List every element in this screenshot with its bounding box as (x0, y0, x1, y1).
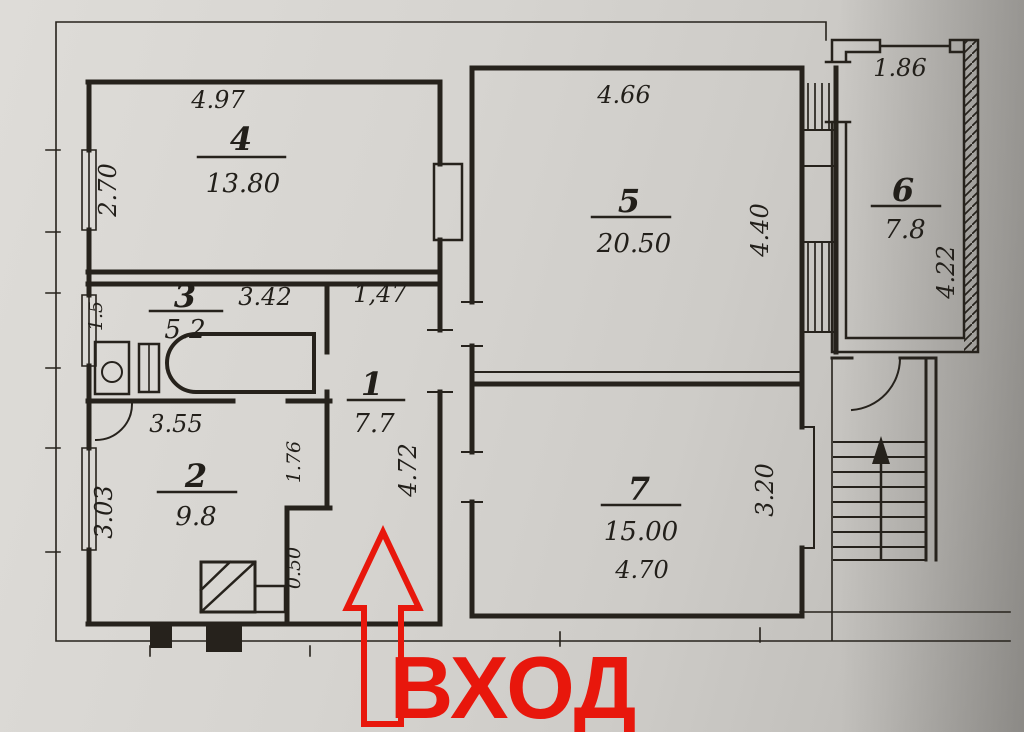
vent-block (150, 624, 172, 648)
dim-height-corridor: 4.72 (394, 443, 422, 497)
room-3-number: 3 (174, 277, 196, 315)
room-7-area: 15.00 (604, 517, 678, 547)
dim-width-room5: 4.66 (596, 81, 650, 109)
walls (88, 68, 836, 624)
stair-up-arrow-head (872, 436, 890, 464)
dim-height-room4: 2.70 (94, 163, 122, 217)
room-7-number: 7 (628, 470, 650, 508)
dim-height-room6: 4.22 (932, 245, 960, 299)
room-4-number: 4 (230, 120, 252, 158)
dim-width-room6: 1.86 (873, 54, 926, 82)
stove-hatch (201, 562, 255, 612)
dim-niche-height: 1.76 (283, 441, 305, 483)
dim-width-hall: 1,47 (353, 280, 407, 308)
kitchen-door-arc (96, 404, 132, 440)
room-2-area: 9.8 (175, 502, 216, 532)
stairwell (832, 358, 936, 560)
dim-height-room7: 3.20 (751, 463, 779, 516)
closet (434, 164, 462, 240)
room6-vent-wall-hatch (964, 40, 978, 352)
room-3-area: 5.2 (164, 315, 205, 345)
dim-height-room2: 3.03 (90, 485, 118, 538)
dim-height-room5: 4.40 (746, 203, 774, 257)
vent-shaft-hatch (802, 243, 835, 331)
toilet (95, 342, 129, 394)
room-1-number: 1 (361, 365, 383, 403)
room-4-area: 13.80 (206, 169, 280, 199)
room-6-area: 7.8 (884, 215, 925, 245)
room-5-area: 20.50 (596, 229, 671, 259)
dim-width-room7: 4.70 (614, 556, 668, 584)
floor-plan-scan: 4 13.80 3 5.2 1 7.7 2 9.8 5 20.50 7 15.0… (0, 0, 1024, 732)
dim-width-room2: 3.55 (149, 410, 202, 438)
dim-width-room4: 4.97 (190, 86, 245, 114)
room-6-number: 6 (892, 171, 914, 209)
dim-height-room3: 1.5 (85, 301, 107, 331)
toilet-bowl (102, 362, 122, 382)
entrance-marker: ВХОД (347, 532, 636, 732)
sink-cabinet (255, 586, 285, 612)
stair-door-arc (852, 359, 900, 410)
dim-niche-width: 0.50 (283, 547, 305, 589)
vent-block (206, 626, 242, 652)
entrance-label: ВХОД (390, 638, 637, 732)
dim-width-room3: 3.42 (238, 283, 291, 311)
room-2-number: 2 (184, 457, 207, 495)
room-5-number: 5 (618, 182, 640, 220)
room-1-area: 7.7 (353, 409, 395, 439)
